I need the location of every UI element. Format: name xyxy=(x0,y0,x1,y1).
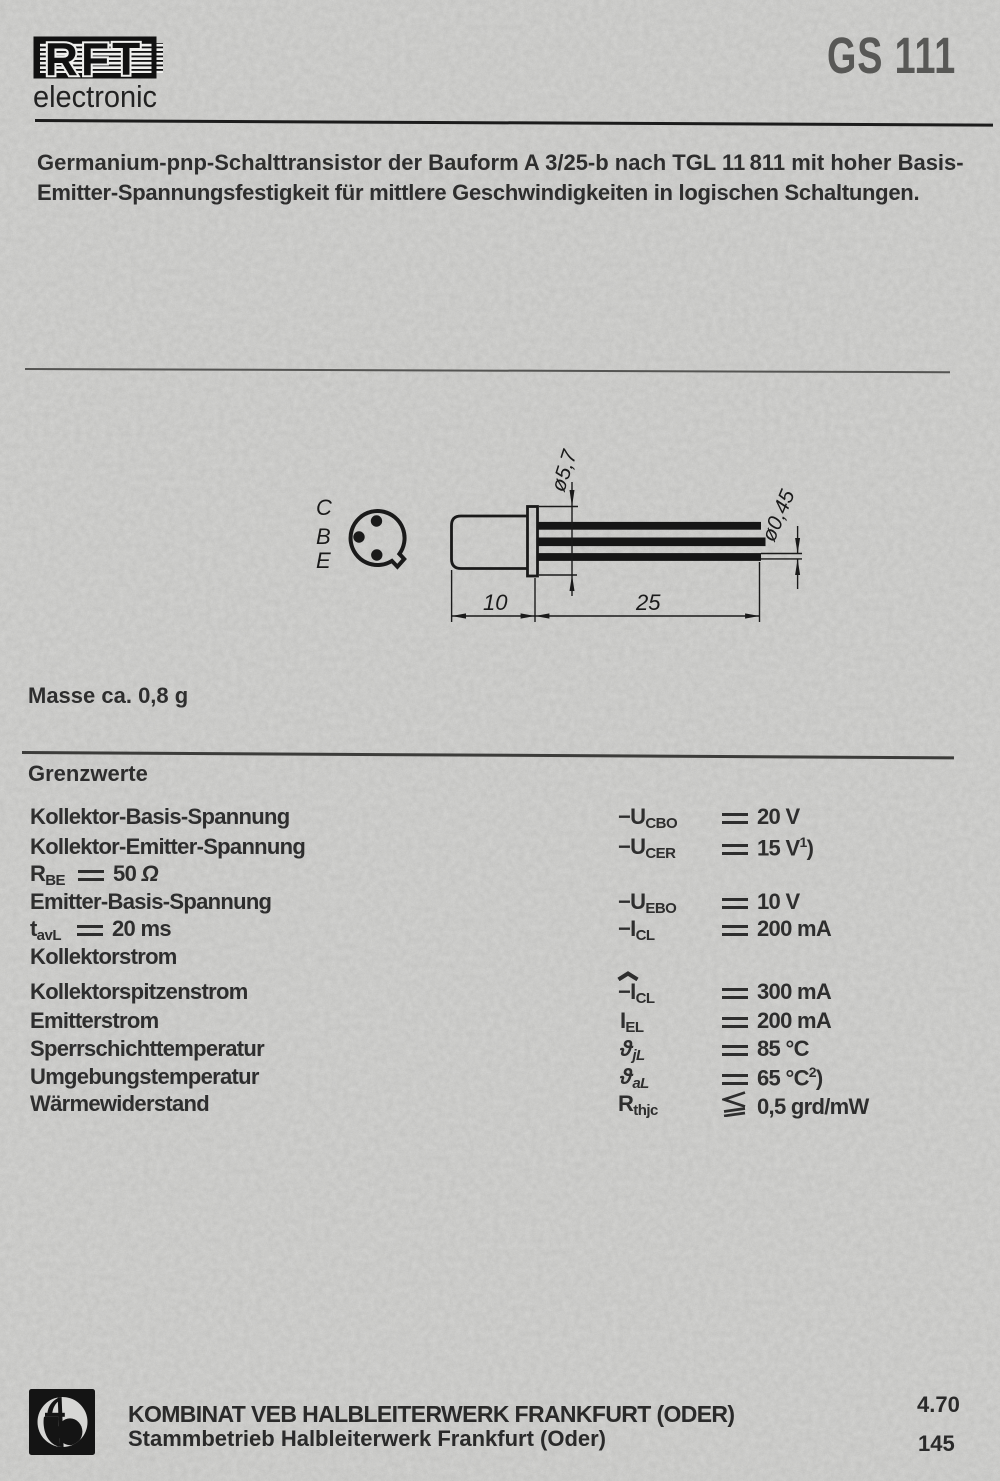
svg-text:RFT: RFT xyxy=(45,33,143,83)
svg-text:ø0,45: ø0,45 xyxy=(757,486,799,545)
svg-text:B: B xyxy=(316,524,331,549)
svg-text:ø5,7: ø5,7 xyxy=(547,446,582,494)
svg-text:25: 25 xyxy=(635,590,661,615)
svg-text:C: C xyxy=(316,495,332,520)
svg-text:E: E xyxy=(316,548,331,573)
svg-text:10: 10 xyxy=(483,590,508,615)
